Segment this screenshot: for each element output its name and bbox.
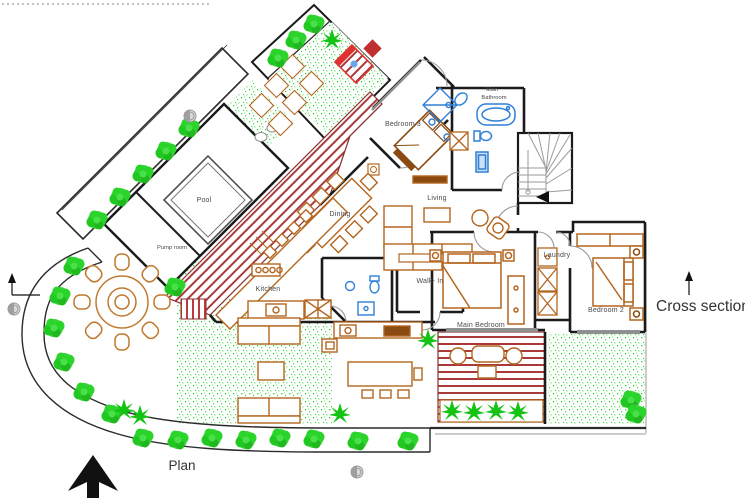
label-plan: Plan	[168, 458, 195, 473]
round-table-set	[74, 254, 170, 350]
outdoor-table	[348, 362, 412, 386]
label-living: Living	[427, 195, 447, 202]
label-dining: Dining	[329, 211, 350, 218]
label-pump-room: Pump room	[157, 245, 187, 251]
label-cross-section: Cross section	[656, 298, 745, 315]
label-bedroom3: Bedroom 3	[385, 121, 421, 128]
staircase	[518, 133, 572, 203]
label-main-bedroom: Main Bedroom	[457, 322, 505, 329]
label-kitchen: Kitchen	[256, 286, 281, 293]
deck-steps	[181, 299, 206, 319]
floor-plan-drawing: Pool Pump room Bedroom 3 Main Bathroom L…	[0, 0, 745, 498]
label-laundry: Laundry	[544, 252, 571, 259]
label-bedroom2: Bedroom 2	[588, 307, 624, 314]
manhole-icon	[8, 303, 20, 315]
duct-shaft	[450, 132, 468, 150]
floor-plan-canvas: Pool Pump room Bedroom 3 Main Bathroom L…	[0, 0, 745, 498]
label-walk-in: Walk- In	[416, 278, 443, 285]
label-main-bathroom-1: Main	[486, 87, 499, 93]
label-main-bathroom-2: Bathroom	[481, 95, 506, 101]
manhole-icon	[184, 110, 196, 122]
manhole-icon	[351, 466, 363, 478]
label-pool: Pool	[197, 197, 212, 204]
